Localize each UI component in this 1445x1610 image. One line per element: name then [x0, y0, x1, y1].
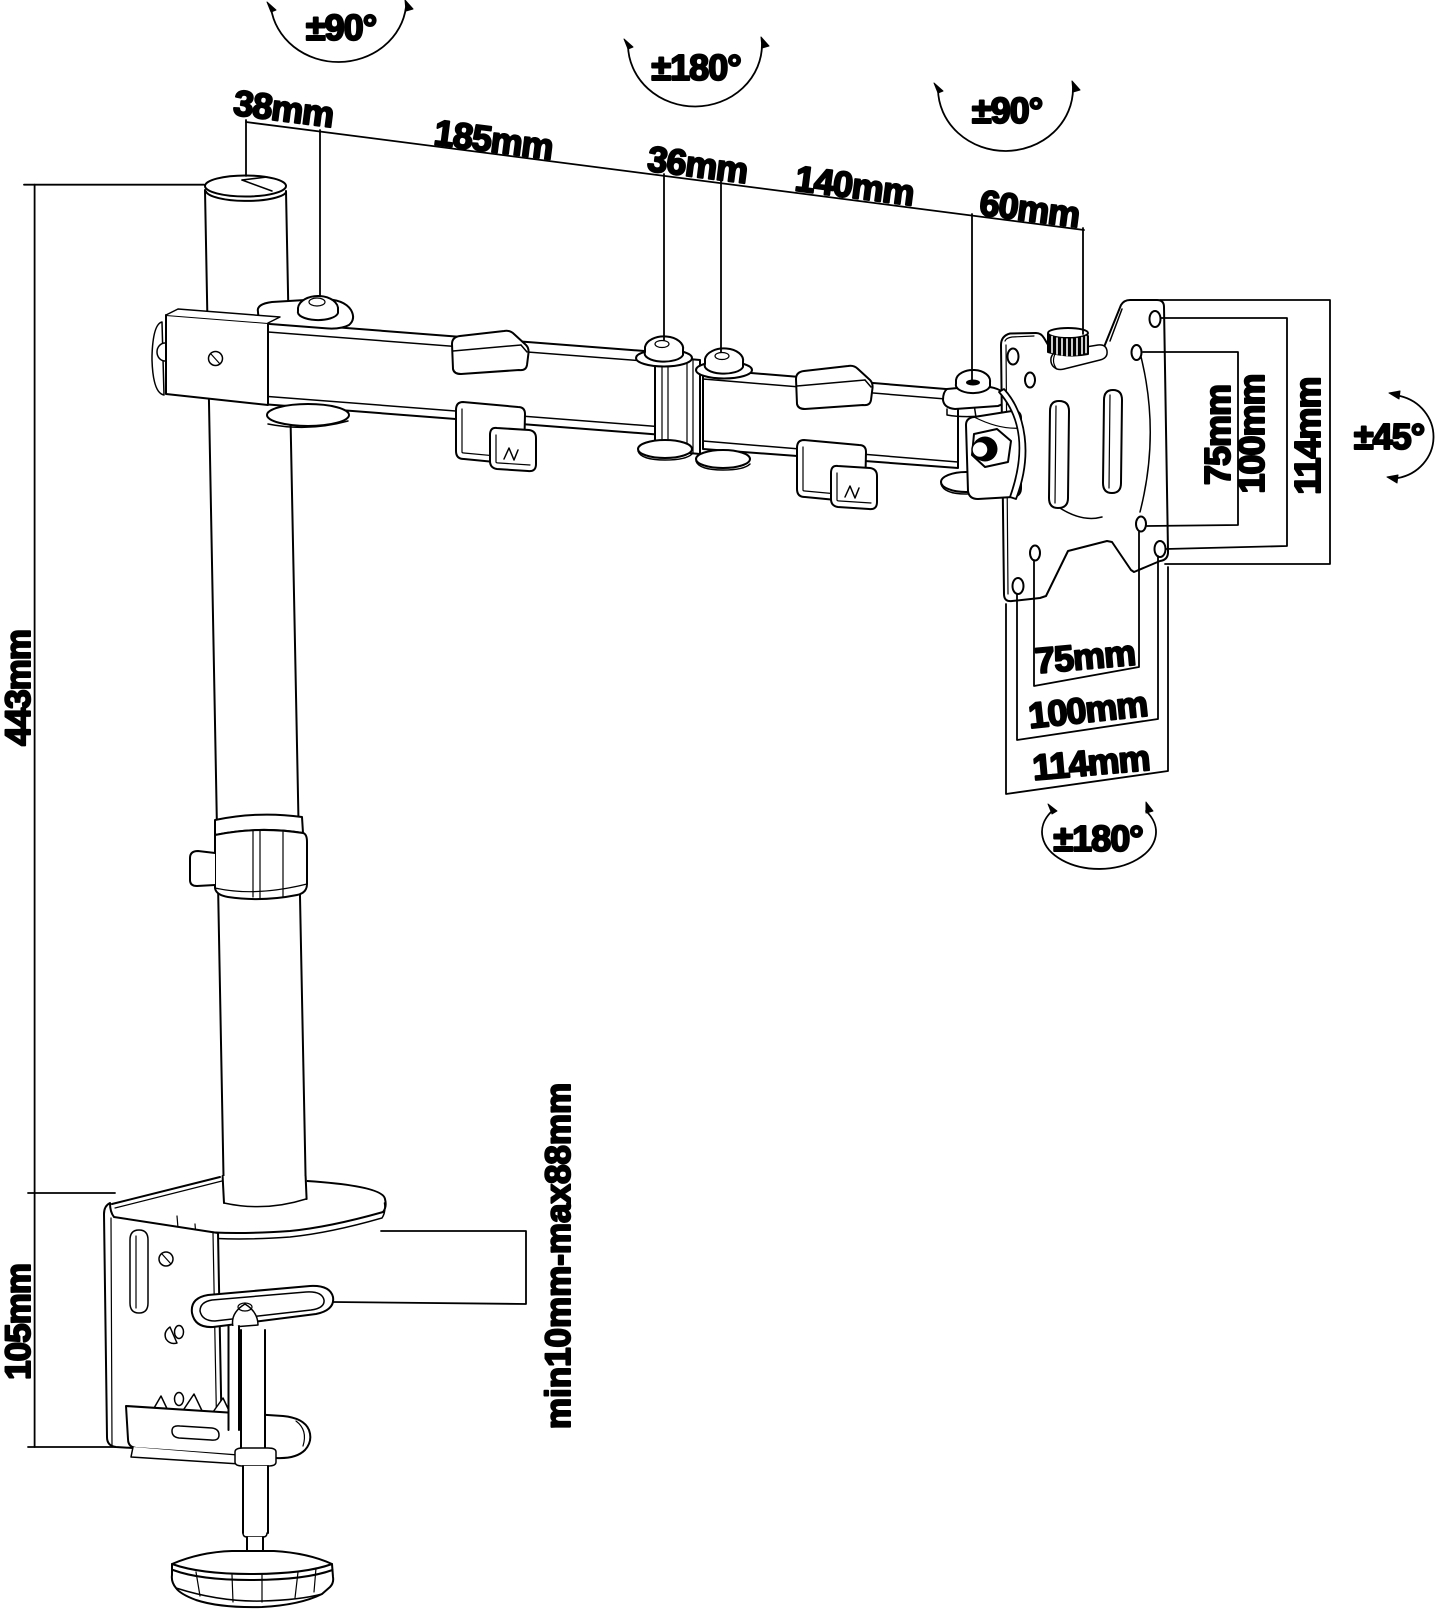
svg-text:36mm: 36mm	[645, 138, 749, 191]
svg-text:185mm: 185mm	[432, 112, 555, 168]
svg-text:140mm: 140mm	[793, 158, 916, 214]
svg-text:100mm: 100mm	[1026, 683, 1149, 736]
svg-text:60mm: 60mm	[977, 182, 1081, 235]
svg-text:38mm: 38mm	[231, 82, 335, 135]
svg-text:100mm: 100mm	[1231, 374, 1272, 493]
svg-text:±90°: ±90°	[972, 90, 1042, 131]
svg-text:±180°: ±180°	[651, 47, 740, 88]
svg-text:105mm: 105mm	[0, 1264, 38, 1380]
svg-text:±90°: ±90°	[306, 7, 376, 48]
svg-text:±45°: ±45°	[1354, 416, 1424, 457]
svg-text:min10mm-max88mm: min10mm-max88mm	[539, 1083, 578, 1429]
svg-text:443mm: 443mm	[0, 630, 38, 746]
svg-text:±180°: ±180°	[1053, 818, 1142, 859]
svg-text:114mm: 114mm	[1031, 737, 1151, 788]
svg-text:114mm: 114mm	[1287, 377, 1328, 494]
svg-text:75mm: 75mm	[1033, 632, 1136, 682]
